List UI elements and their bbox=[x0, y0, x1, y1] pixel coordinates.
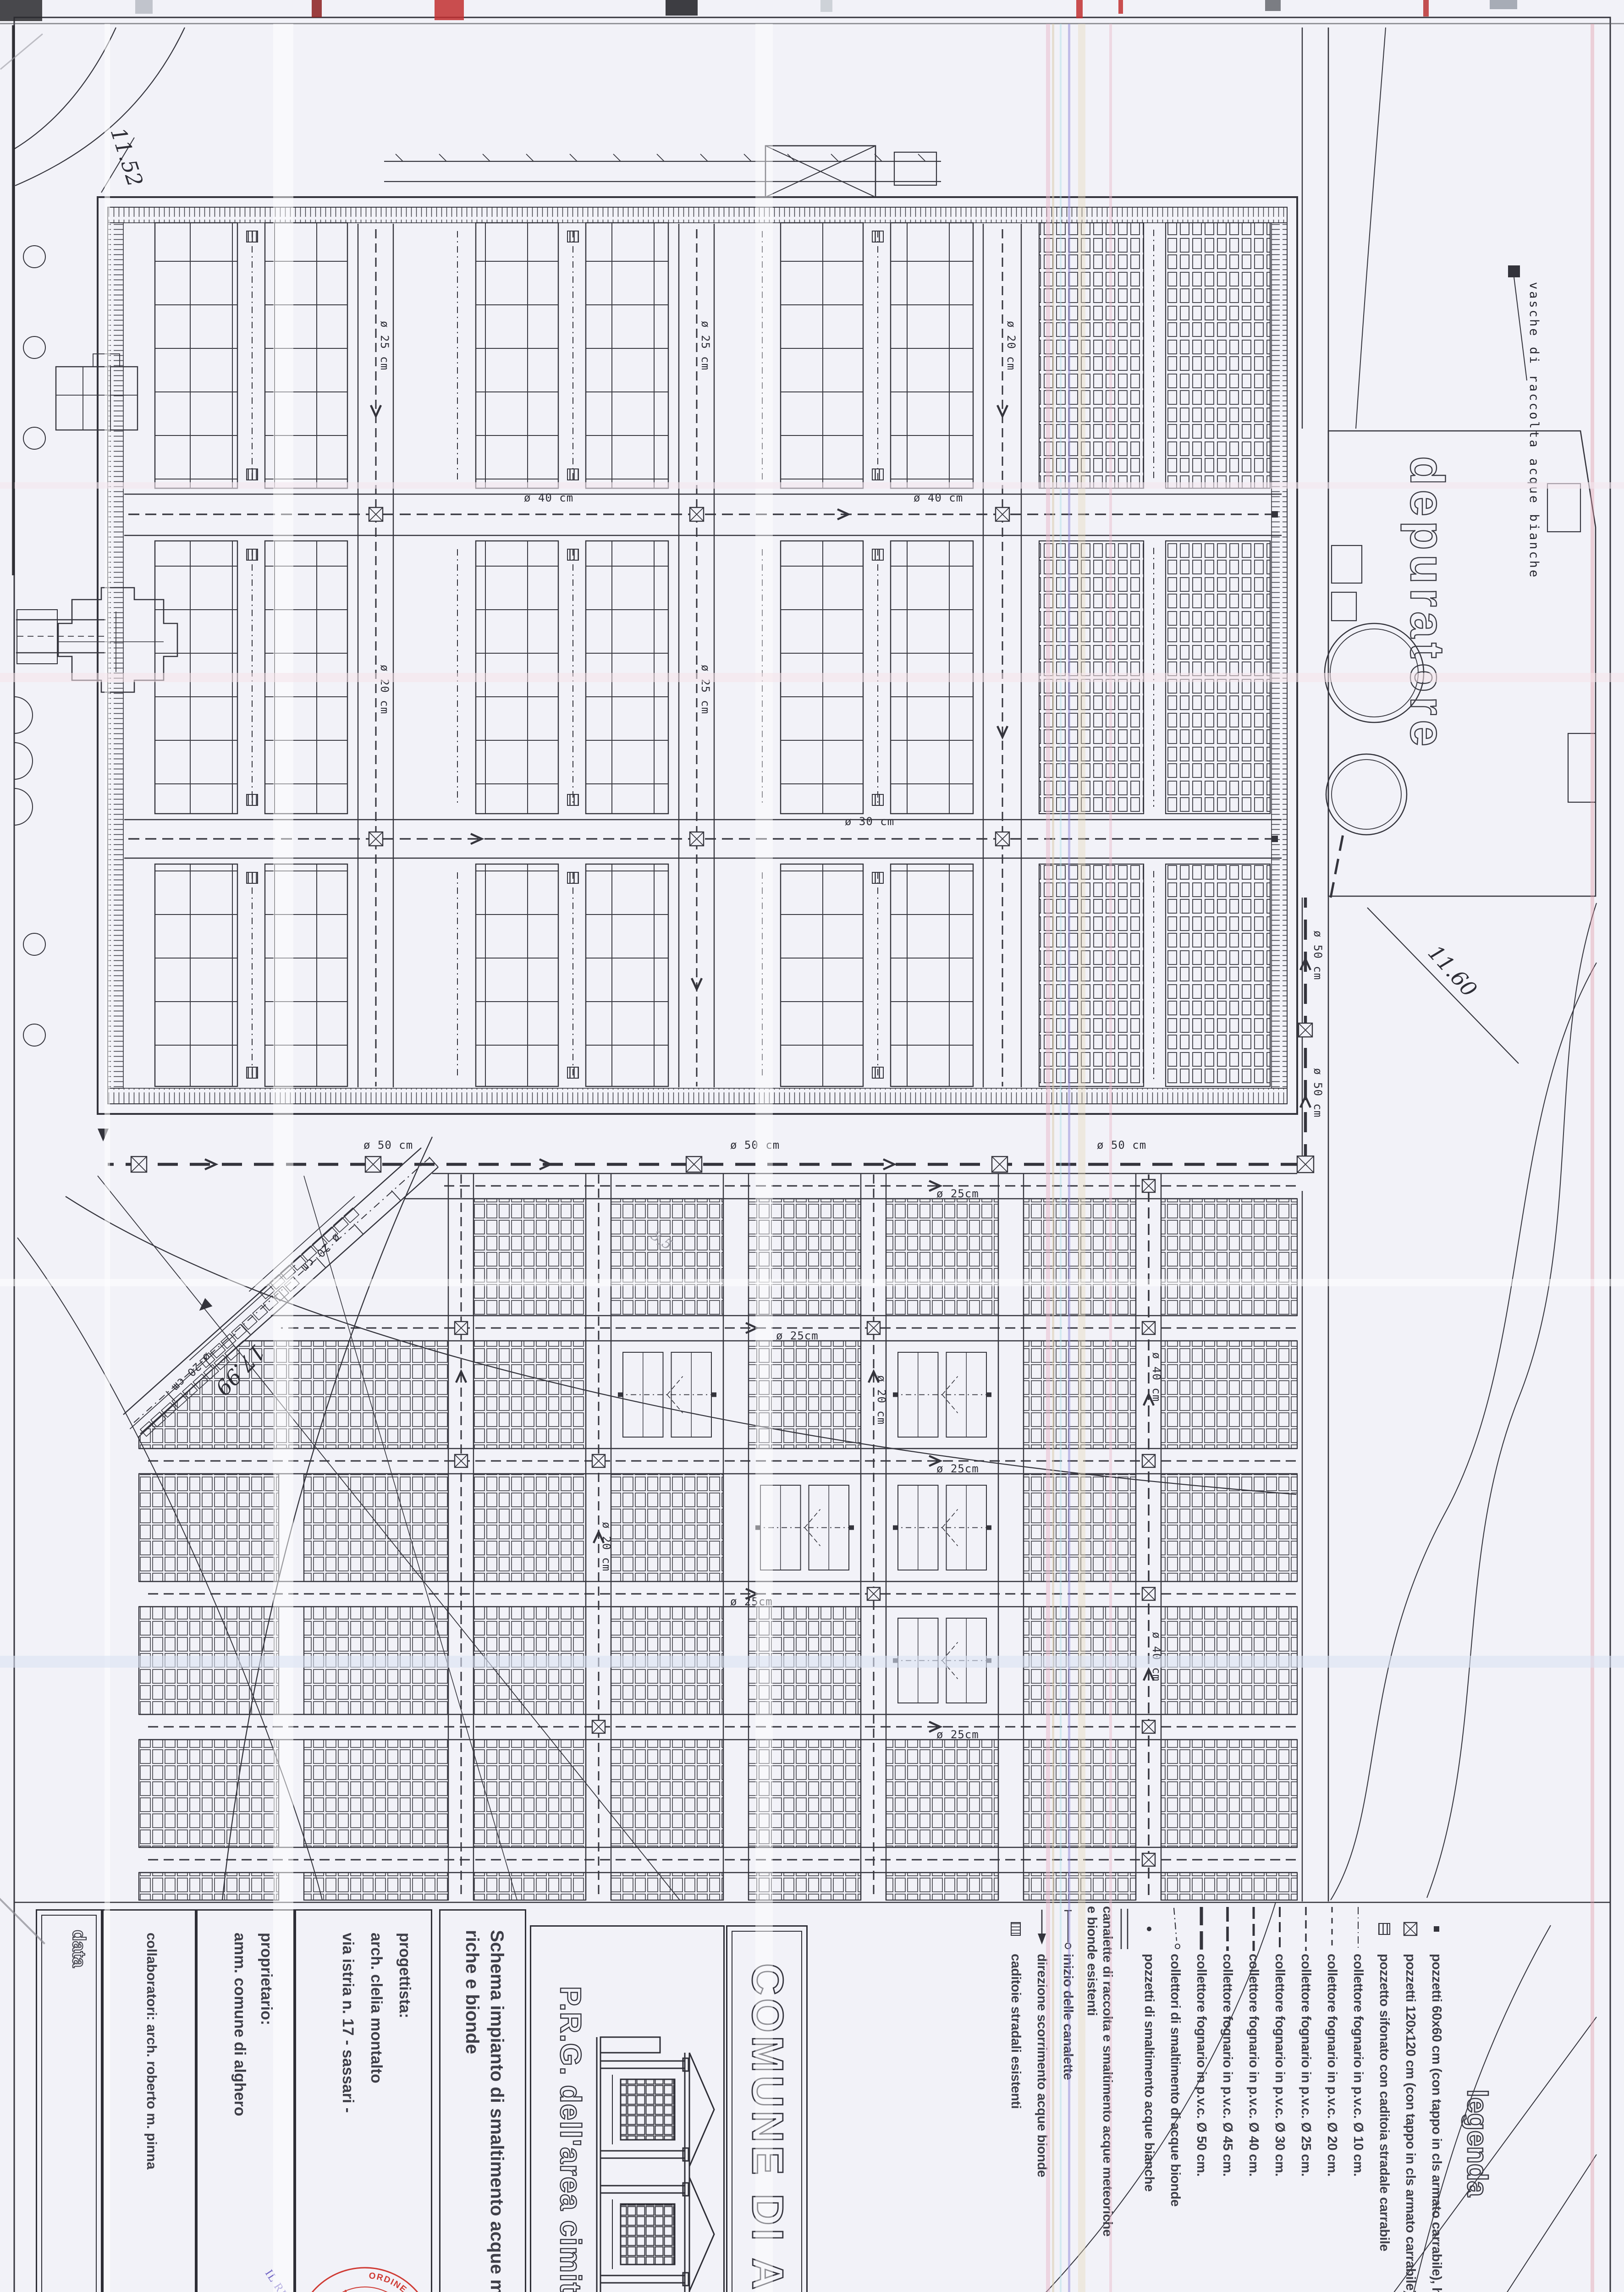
legend-item: collettore fognario in p.v.c. Ø 45 cm. bbox=[1217, 1906, 1238, 2292]
titleblock-comune: COMUNE DI ALGHERO bbox=[726, 1925, 808, 2292]
legend-item-label: collettori di smaltimento di acque biond… bbox=[1168, 1954, 1184, 2207]
legend-item-label: caditoie stradali esistenti bbox=[1008, 1954, 1024, 2109]
proprietario-label: proprietario: bbox=[253, 1933, 280, 2116]
legend-item: caditoie stradali esistenti bbox=[1006, 1906, 1026, 2292]
legend-title: legenda bbox=[1461, 2089, 1493, 2292]
titleblock-proprietario: proprietario: amm. comune di alghero bbox=[196, 1909, 295, 2292]
map-annotation: ø 40 cm bbox=[1150, 1352, 1163, 1402]
legend-item: collettore fognario in p.v.c. Ø 25 cm. bbox=[1296, 1906, 1316, 2292]
schema-title: Schema impianto di smaltimento acque met… bbox=[460, 1930, 509, 2292]
legend-symbol-icon bbox=[1376, 1906, 1394, 1954]
legend-symbol-icon bbox=[1167, 1906, 1185, 1954]
progettista-name: arch. clelia montalto bbox=[362, 1933, 391, 2113]
legend-symbol-icon bbox=[1193, 1906, 1211, 1954]
map-annotation: ø 20 cm bbox=[378, 665, 391, 714]
legend-item-label: collettore fognario in p.v.c. Ø 45 cm. bbox=[1220, 1954, 1236, 2176]
map-annotation: ø 50 cm bbox=[1097, 1139, 1146, 1152]
map-annotation: ø 25cm bbox=[730, 1595, 773, 1608]
titleblock-schema: Schema impianto di smaltimento acque met… bbox=[439, 1909, 526, 2292]
data-inner-border bbox=[41, 1915, 97, 2292]
map-annotation: vasche di raccolta acque bianche bbox=[1527, 282, 1541, 579]
schema-line2: riche e bionde bbox=[460, 1930, 484, 2292]
legend-item-label: collettore fognario in p.v.c. Ø 25 cm. bbox=[1299, 1954, 1314, 2176]
map-annotation: 11.60 bbox=[1423, 940, 1482, 1002]
legend-symbol-icon bbox=[1219, 1906, 1237, 1954]
legend-symbol-icon bbox=[1271, 1906, 1289, 1954]
titleblock-prg: P.R.G. dell'area cimiteriale bbox=[530, 1925, 725, 2292]
legend-symbol-icon bbox=[1033, 1906, 1051, 1954]
legend-item-label: pozzetto sifonato con caditoia stradale … bbox=[1377, 1954, 1393, 2251]
schema-line1: Schema impianto di smaltimento acque met… bbox=[484, 1930, 509, 2292]
map-annotation: ø 30 cm bbox=[845, 815, 894, 828]
prg-title: P.R.G. dell'area cimiteriale bbox=[554, 1927, 588, 2292]
map-annotation: 11.52 bbox=[106, 125, 148, 190]
legend-item-label: collettore fognario in p.v.c. Ø 10 cm. bbox=[1351, 1954, 1366, 2176]
map-annotation: ø 50 cm bbox=[1311, 931, 1324, 980]
map-annotation: depuratore bbox=[1400, 456, 1453, 751]
legend-item-label: collettore fognario in p.v.c. Ø 30 cm. bbox=[1272, 1954, 1288, 2176]
legend-item: pozzetti 60x60 cm (con tappo in cls arma… bbox=[1426, 1906, 1447, 2292]
legend-symbol-icon bbox=[1402, 1906, 1420, 1954]
progettista-label: progettista: bbox=[391, 1933, 419, 2113]
legend-item: pozzetti di smaltimento acque bianche bbox=[1139, 1906, 1160, 2292]
map-annotation: ø 25 cm bbox=[699, 321, 712, 370]
legend-symbol-icon bbox=[1007, 1906, 1025, 1954]
legend-item-label: collettore fognario in p.v.c. Ø 20 cm. bbox=[1325, 1954, 1340, 2176]
legend-item: collettore fognario in p.v.c. Ø 50 cm. bbox=[1191, 1906, 1212, 2292]
legend-symbol-icon bbox=[1349, 1906, 1368, 1954]
map-annotation: ø 50 cm bbox=[1311, 1068, 1324, 1118]
map-annotation: ø 50 cm bbox=[730, 1139, 780, 1152]
map-annotation: ø 25cm bbox=[776, 1329, 819, 1342]
legend-item: collettore fognario in p.v.c. Ø 10 cm. bbox=[1348, 1906, 1369, 2292]
stamp-ring-top: ORDINE ARCHITETTI PIANIFICATORI PAESAGGI… bbox=[365, 2258, 444, 2292]
legend-item: canalette di raccolta e smaltimento acqu… bbox=[1084, 1906, 1134, 2292]
progettista-address: via istria n. 17 - sassari - bbox=[334, 1933, 362, 2113]
collaboratori-line: collaboratori: arch. roberto m. pinna bbox=[143, 1933, 159, 2170]
titleblock-progettista: progettista: arch. clelia montalto via i… bbox=[295, 1909, 432, 2292]
drawing-landscape: depuratorevasche di raccolta acque bianc… bbox=[0, 0, 1624, 2292]
legend-symbol-icon bbox=[1323, 1906, 1342, 1954]
legend-symbol-icon bbox=[1059, 1906, 1078, 1954]
proprietario-name: amm. comune di alghero bbox=[226, 1933, 253, 2116]
legend-item: collettori di smaltimento di acque biond… bbox=[1165, 1906, 1186, 2292]
map-annotation: ø 25cm bbox=[936, 1187, 979, 1200]
legend-symbol-icon bbox=[1428, 1906, 1446, 1954]
legend-item: collettore fognario in p.v.c. Ø 30 cm. bbox=[1270, 1906, 1290, 2292]
legend-item: collettore fognario in p.v.c. Ø 40 cm. bbox=[1244, 1906, 1264, 2292]
titleblock-collaboratori: collaboratori: arch. roberto m. pinna - … bbox=[102, 1909, 196, 2292]
legend-symbol-icon bbox=[1245, 1906, 1263, 1954]
map-annotation: ø 40 cm bbox=[524, 491, 573, 504]
cemetery-entrance-elevation bbox=[590, 2034, 719, 2292]
legend-item-label: pozzetti 60x60 cm (con tappo in cls arma… bbox=[1429, 1954, 1445, 2292]
legend-item: inizio delle canalette bbox=[1058, 1906, 1079, 2292]
map-annotation: ø 25cm bbox=[936, 1728, 979, 1741]
comune-title: COMUNE DI ALGHERO bbox=[742, 1963, 793, 2292]
scanned-sheet: depuratorevasche di raccolta acque bianc… bbox=[0, 0, 1624, 2292]
map-annotation: ø 20 cm bbox=[600, 1522, 613, 1571]
legend-item: direzione scorrimento acque bionde bbox=[1032, 1906, 1052, 2292]
legend-item-label: pozzetti di smaltimento acque bianche bbox=[1142, 1954, 1157, 2192]
map-annotation: ø 25 cm bbox=[378, 321, 391, 370]
legend-item-label2: e bionde esistenti bbox=[1084, 1906, 1100, 2292]
architect-order-stamp: ORDINE ARCHITETTI PIANIFICATORI PAESAGGI… bbox=[286, 2258, 444, 2292]
svg-text:ORDINE ARCHITETTI PIANIFICATOR: ORDINE ARCHITETTI PIANIFICATORI PAESAGGI… bbox=[365, 2258, 444, 2292]
titleblock-data: data maggio 200 bbox=[36, 1909, 102, 2292]
legend-symbol-icon bbox=[1297, 1906, 1316, 1954]
legend: legenda pozzetti 60x60 cm (con tappo in … bbox=[1000, 1906, 1493, 2292]
legend-item-label: inizio delle canalette bbox=[1061, 1954, 1076, 2080]
map-annotation: ø 50 cm bbox=[363, 1139, 413, 1152]
legend-items: pozzetti 60x60 cm (con tappo in cls arma… bbox=[1006, 1906, 1447, 2292]
legend-item: collettore fognario in p.v.c. Ø 20 cm. bbox=[1322, 1906, 1343, 2292]
legend-item-label: canalette di raccolta e smaltimento acqu… bbox=[1100, 1906, 1115, 2292]
map-annotation: ø 20 cm bbox=[1005, 321, 1018, 370]
legend-symbol-icon bbox=[1115, 1906, 1134, 2292]
legend-item: pozzetto sifonato con caditoia stradale … bbox=[1374, 1906, 1395, 2292]
legend-item-label: direzione scorrimento acque bionde bbox=[1035, 1954, 1050, 2177]
legend-item-label: pozzetti 120x120 cm (con tappo in cls ar… bbox=[1403, 1954, 1419, 2292]
map-annotation: ø 40 cm bbox=[914, 491, 963, 504]
map-annotation: ø 25cm bbox=[936, 1462, 979, 1475]
map-annotation: ø 40 cm bbox=[1150, 1632, 1163, 1681]
legend-item-label: collettore fognario in p.v.c. Ø 50 cm. bbox=[1194, 1954, 1210, 2176]
legend-item: pozzetti 120x120 cm (con tappo in cls ar… bbox=[1400, 1906, 1421, 2292]
legend-item-label: collettore fognario in p.v.c. Ø 40 cm. bbox=[1246, 1954, 1262, 2176]
legend-symbol-icon bbox=[1140, 1906, 1159, 1954]
map-annotation: ø 20 cm bbox=[875, 1375, 888, 1425]
map-annotation: ø 25 cm bbox=[699, 665, 712, 714]
data-label: data bbox=[68, 1930, 89, 1967]
